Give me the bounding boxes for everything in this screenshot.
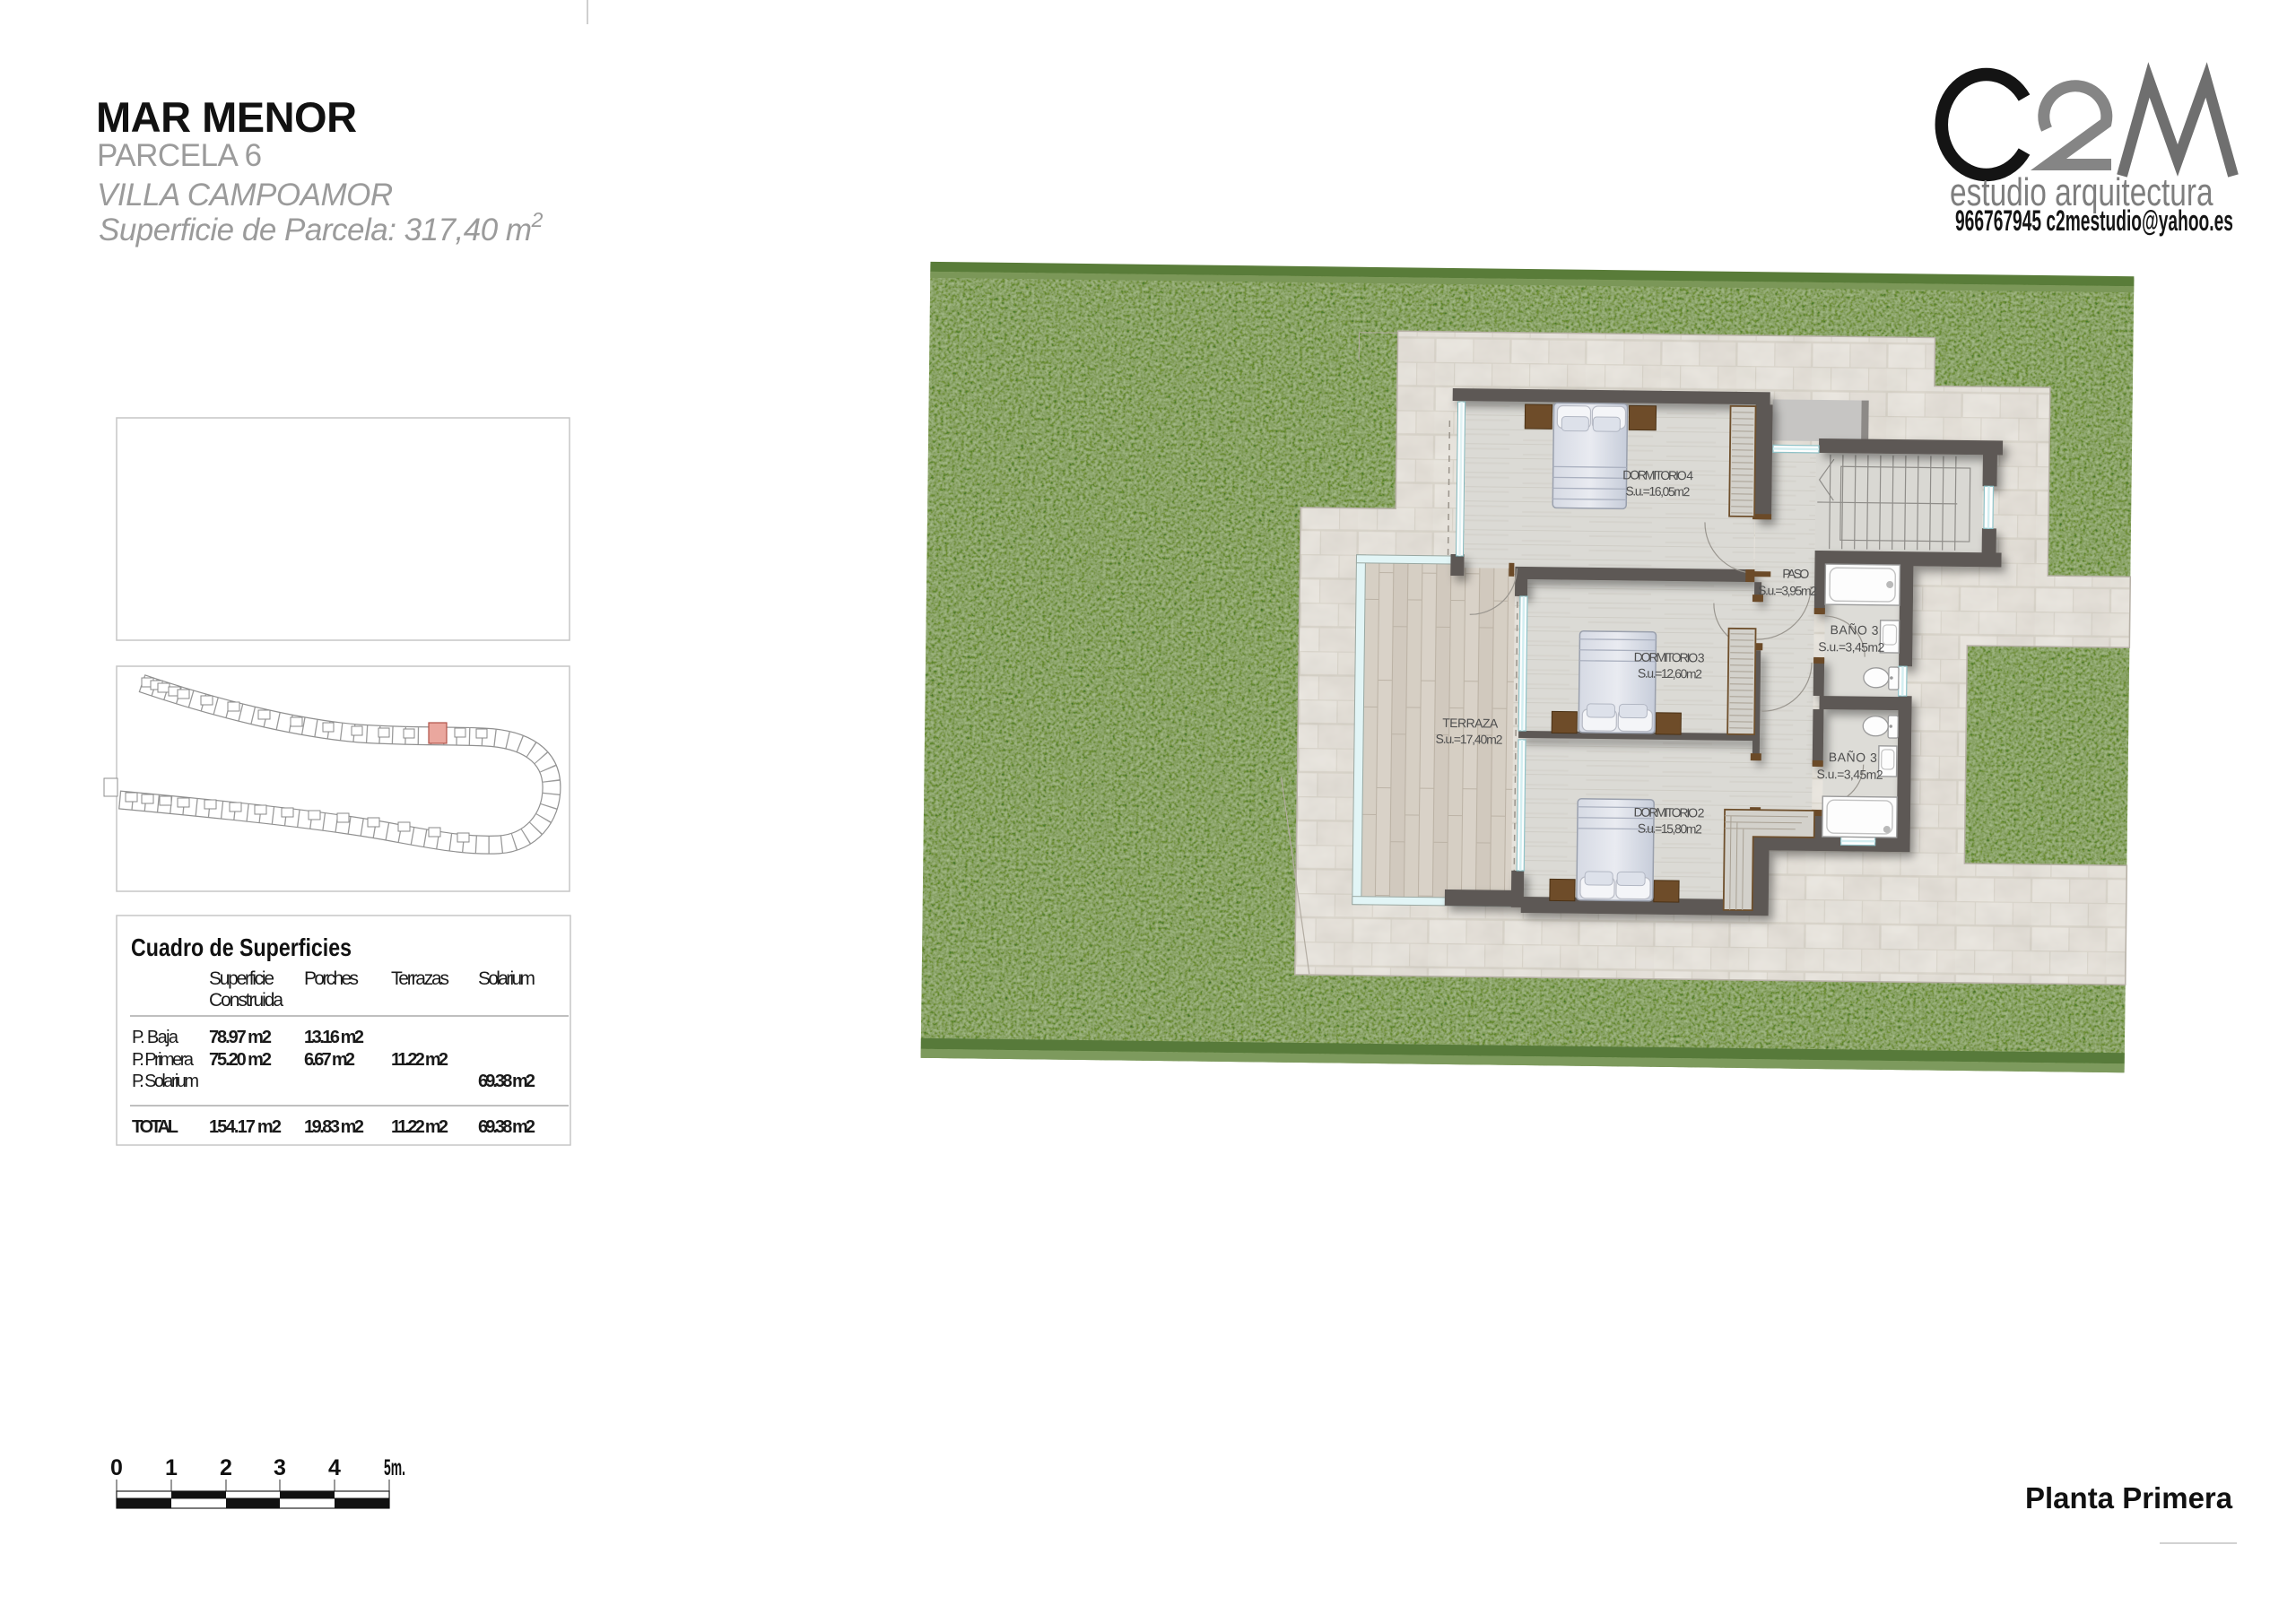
svg-text:3: 3 (274, 1455, 286, 1480)
svg-text:2: 2 (220, 1455, 232, 1480)
svg-text:Solarium: Solarium (478, 968, 535, 989)
svg-text:11.22 m2: 11.22 m2 (391, 1117, 448, 1137)
svg-text:19.83 m2: 19.83 m2 (304, 1117, 364, 1137)
svg-text:69.38 m2: 69.38 m2 (478, 1072, 535, 1091)
svg-text:5m.: 5m. (384, 1455, 405, 1480)
svg-text:75.20 m2: 75.20 m2 (209, 1050, 272, 1070)
svg-text:Construida: Construida (209, 990, 283, 1011)
svg-text:154.17 m2: 154.17 m2 (209, 1117, 282, 1137)
svg-text:S.u.=3,95m2: S.u.=3,95m2 (1758, 583, 1817, 598)
svg-text:MAR MENOR: MAR MENOR (96, 93, 357, 141)
svg-text:DORMITORIO 3: DORMITORIO 3 (1634, 649, 1705, 664)
svg-text:DORMITORIO 4: DORMITORIO 4 (1622, 467, 1693, 482)
svg-text:S.u.=17,40m2: S.u.=17,40m2 (1435, 732, 1502, 747)
svg-text:Porches: Porches (304, 968, 359, 989)
svg-text:TOTAL: TOTAL (132, 1117, 178, 1137)
svg-text:P. Baja: P. Baja (132, 1028, 179, 1047)
svg-text:PASO: PASO (1782, 567, 1809, 581)
svg-text:11.22 m2: 11.22 m2 (391, 1050, 448, 1070)
svg-text:0: 0 (110, 1455, 123, 1480)
svg-text:S.u.=15,80m2: S.u.=15,80m2 (1638, 821, 1702, 837)
svg-text:PARCELA 6: PARCELA 6 (97, 138, 262, 173)
svg-text:4: 4 (328, 1455, 341, 1480)
svg-text:BAÑO 3: BAÑO 3 (1829, 750, 1877, 765)
svg-text:VILLA CAMPOAMOR: VILLA CAMPOAMOR (97, 178, 393, 213)
svg-text:S.u.=12,60m2: S.u.=12,60m2 (1638, 666, 1702, 681)
svg-text:966767945 c2mestudio@yahoo.es: 966767945 c2mestudio@yahoo.es (1955, 204, 2233, 237)
svg-text:Terrazas: Terrazas (391, 968, 449, 989)
svg-text:78.97 m2: 78.97 m2 (209, 1028, 272, 1047)
svg-text:Cuadro de Superficies: Cuadro de Superficies (131, 933, 352, 961)
svg-text:13.16 m2: 13.16 m2 (304, 1028, 364, 1047)
svg-text:S.u.=16,05m2: S.u.=16,05m2 (1625, 483, 1690, 499)
svg-text:Superficie de Parcela: 317,40: Superficie de Parcela: 317,40 m2 (99, 208, 544, 247)
svg-text:BAÑO 3: BAÑO 3 (1830, 622, 1878, 638)
svg-text:1: 1 (165, 1455, 178, 1480)
svg-text:Superficie: Superficie (209, 968, 274, 989)
svg-text:DORMITORIO 2: DORMITORIO 2 (1633, 804, 1704, 820)
svg-text:Planta Primera: Planta Primera (2025, 1481, 2233, 1515)
svg-text:P. Solarium: P. Solarium (132, 1072, 199, 1091)
svg-text:69.38 m2: 69.38 m2 (478, 1117, 535, 1137)
svg-text:S.u.=3,45m2: S.u.=3,45m2 (1816, 767, 1883, 782)
svg-text:6.67 m2: 6.67 m2 (304, 1050, 355, 1070)
svg-text:S.u.=3,45m2: S.u.=3,45m2 (1818, 639, 1884, 655)
svg-text:TERRAZA: TERRAZA (1442, 716, 1499, 731)
svg-text:P. Primera: P. Primera (132, 1050, 195, 1070)
